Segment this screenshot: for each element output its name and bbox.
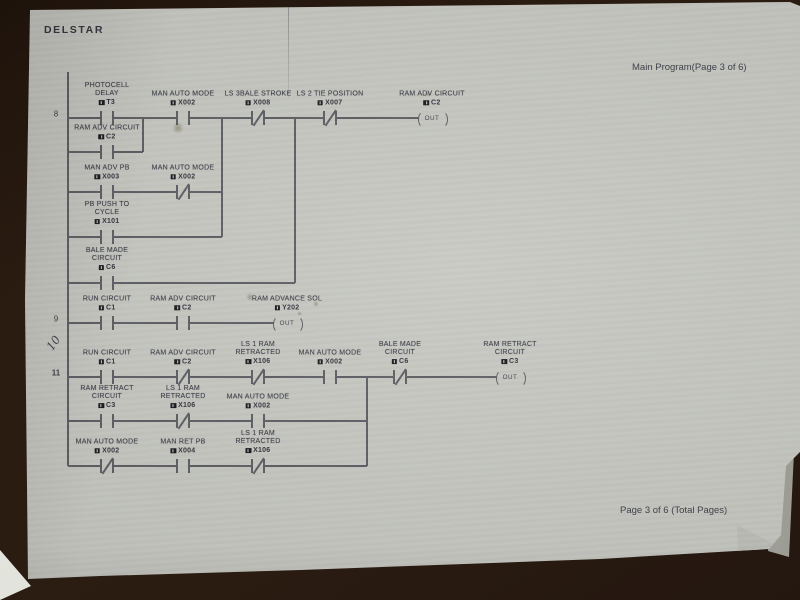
wire-vertical: [67, 72, 68, 466]
contact-bar: [188, 185, 190, 199]
device-name-text: MAN ADV PB: [84, 164, 129, 172]
device-name-text: DELAY: [85, 90, 130, 98]
device-marker-icon: [95, 219, 101, 225]
paper-stain: [297, 311, 302, 316]
device-marker-icon: [175, 305, 181, 311]
device-tag-text: X004: [178, 447, 195, 454]
contact-no-C6-label: BALE MADECIRCUITC6: [86, 247, 128, 272]
device-tag-text: C6: [399, 358, 408, 365]
paper-stain: [246, 293, 254, 301]
contact-bar: [188, 111, 190, 125]
contact-bar: [188, 414, 190, 428]
device-name-text: PB PUSH TO: [85, 201, 130, 209]
wire-horizontal: [68, 117, 432, 118]
device-tag-text: X007: [325, 99, 342, 106]
coil-C3-label: RAM RETRACTCIRCUITC3: [483, 341, 536, 366]
device-tag: Y202: [252, 304, 322, 313]
device-tag-text: T3: [106, 99, 115, 106]
contact-gap: [102, 315, 112, 331]
contact-bar: [112, 276, 114, 290]
contact-bar: [100, 316, 102, 330]
device-tag: X002: [299, 358, 362, 367]
device-name-text: LS 1 RAM: [160, 385, 205, 393]
contact-no-X101-label: PB PUSH TOCYCLEX101: [85, 201, 130, 226]
wire-vertical: [221, 118, 222, 237]
device-tag: X101: [85, 218, 130, 227]
footer-page-label: Page 3 of 6 (Total Pages): [620, 505, 727, 516]
ladder-printout-paper: DELSTAR Main Program(Page 3 of 6) Page 3…: [0, 0, 800, 600]
contact-bar: [112, 316, 114, 330]
contact-bar: [263, 111, 265, 125]
contact-nc-C2-label: RAM ADV CIRCUITC2: [150, 349, 216, 366]
page-title: DELSTAR: [44, 24, 104, 36]
paper-stain: [313, 301, 319, 307]
contact-bar: [112, 145, 114, 159]
device-name-text: PHOTOCELL: [85, 82, 130, 90]
device-marker-icon: [171, 403, 177, 409]
contact-gap: [102, 144, 112, 160]
device-tag-text: X002: [325, 358, 342, 365]
contact-bar: [263, 370, 265, 384]
contact-gap: [325, 369, 335, 385]
contact-bar: [100, 276, 102, 290]
device-name-text: MAN AUTO MODE: [152, 164, 215, 172]
device-marker-icon: [246, 359, 252, 365]
rung-number-8: 8: [54, 110, 58, 119]
coil-out-text: OUT: [274, 320, 300, 327]
device-tag-text: C2: [106, 133, 115, 140]
device-marker-icon: [171, 174, 177, 180]
device-tag-text: C3: [106, 402, 115, 409]
contact-gap: [178, 315, 188, 331]
device-marker-icon: [171, 100, 177, 106]
coil-Y202-label: RAM ADVANCE SOLY202: [252, 295, 322, 312]
device-tag: C6: [379, 358, 421, 367]
contact-no-X002-label: MAN AUTO MODEX002: [152, 90, 215, 107]
rung-number-9: 9: [54, 315, 58, 324]
contact-nc-C6-label: BALE MADECIRCUITC6: [379, 341, 421, 366]
device-name-text: LS 1 RAM: [235, 430, 280, 438]
device-tag-text: C6: [106, 264, 115, 271]
device-name-text: MAN RET PB: [160, 438, 205, 446]
device-name-text: BALE MADE: [86, 247, 128, 255]
contact-bar: [112, 230, 114, 244]
contact-bar: [263, 414, 265, 428]
contact-no-X003-label: MAN ADV PBX003: [84, 164, 129, 181]
device-tag: X003: [84, 173, 129, 182]
contact-gap: [102, 413, 112, 429]
contact-bar: [112, 370, 114, 384]
device-tag-text: X101: [102, 218, 119, 225]
device-tag-text: X106: [253, 447, 270, 454]
contact-nc-X106-label: LS 1 RAMRETRACTEDX106: [160, 385, 205, 410]
rung-number-11: 11: [52, 369, 60, 378]
device-tag: X002: [152, 173, 215, 182]
wire-vertical: [294, 118, 295, 283]
contact-bar: [176, 459, 178, 473]
device-marker-icon: [99, 265, 105, 271]
contact-nc-X106-label: LS 1 RAMRETRACTEDX106: [235, 430, 280, 455]
device-name-text: CYCLE: [85, 209, 130, 217]
contact-nc-X106-label: LS 1 RAMRETRACTEDX106: [235, 341, 280, 366]
device-tag-text: X002: [102, 447, 119, 454]
header-program-title: Main Program(Page 3 of 6): [632, 62, 747, 73]
contact-no-C2-label: RAM ADV CIRCUITC2: [150, 295, 216, 312]
wire-horizontal: [68, 236, 222, 237]
contact-gap: [178, 458, 188, 474]
device-marker-icon: [424, 100, 430, 106]
device-name-text: RAM ADV CIRCUIT: [150, 349, 216, 357]
device-name-text: RUN CIRCUIT: [83, 295, 131, 303]
device-tag-text: C3: [509, 358, 518, 365]
device-name-text: RAM RETRACT: [483, 341, 536, 349]
contact-bar: [335, 370, 337, 384]
device-tag: C6: [86, 264, 128, 273]
device-tag: C2: [150, 358, 216, 367]
device-marker-icon: [171, 448, 177, 454]
contact-bar: [100, 185, 102, 199]
contact-gap: [253, 413, 263, 429]
contact-no-C3-label: RAM RETRACTCIRCUITC3: [80, 385, 133, 410]
device-tag: X106: [160, 402, 205, 411]
device-tag-text: X003: [102, 173, 119, 180]
device-marker-icon: [99, 359, 105, 365]
device-name-text: RAM RETRACT: [80, 385, 133, 393]
coil-C2-label: RAM ADV CIRCUITC2: [399, 90, 465, 107]
contact-gap: [102, 275, 112, 291]
device-tag: C2: [150, 304, 216, 313]
device-marker-icon: [95, 174, 101, 180]
device-tag-text: Y202: [282, 304, 299, 311]
device-tag: X004: [160, 447, 205, 456]
device-marker-icon: [99, 134, 105, 140]
contact-gap: [102, 369, 112, 385]
device-name-text: MAN AUTO MODE: [152, 90, 215, 98]
device-tag-text: C1: [106, 358, 115, 365]
device-tag: C2: [74, 133, 140, 142]
device-name-text: MAN AUTO MODE: [227, 393, 290, 401]
device-tag: X002: [152, 99, 215, 108]
contact-bar: [112, 185, 114, 199]
device-tag: X106: [235, 447, 280, 456]
contact-bar: [405, 370, 407, 384]
paper-stain: [172, 122, 184, 134]
photo-scene: DELSTAR Main Program(Page 3 of 6) Page 3…: [0, 0, 800, 600]
device-name-text: RETRACTED: [235, 349, 280, 357]
device-marker-icon: [99, 100, 105, 106]
device-name-text: RAM ADV CIRCUIT: [74, 124, 140, 132]
contact-nc-X002-label: MAN AUTO MODEX002: [152, 164, 215, 181]
paper-stain: [425, 91, 431, 97]
device-marker-icon: [246, 448, 252, 454]
contact-no-C2-label: RAM ADV CIRCUITC2: [74, 124, 140, 141]
contact-bar: [100, 370, 102, 384]
device-tag: C3: [483, 358, 536, 367]
contact-bar: [112, 459, 114, 473]
device-tag: T3: [85, 99, 130, 108]
contact-bar: [100, 230, 102, 244]
device-name-text: LS 1 RAM: [235, 341, 280, 349]
device-tag: C1: [83, 358, 131, 367]
device-name-text: LS 3BALE STROKE: [225, 90, 292, 98]
device-marker-icon: [95, 448, 101, 454]
device-marker-icon: [246, 100, 252, 106]
contact-bar: [188, 370, 190, 384]
device-tag: X002: [76, 447, 139, 456]
device-tag-text: X106: [178, 402, 195, 409]
device-name-text: LS 2 TIE POSITION: [297, 90, 364, 98]
device-name-text: MAN AUTO MODE: [299, 349, 362, 357]
device-marker-icon: [275, 305, 281, 311]
contact-bar: [100, 414, 102, 428]
device-tag: C2: [399, 99, 465, 108]
device-tag-text: C2: [182, 358, 191, 365]
device-name-text: BALE MADE: [379, 341, 421, 349]
device-marker-icon: [318, 359, 324, 365]
contact-bar: [100, 111, 102, 125]
wire-vertical: [142, 118, 143, 152]
device-name-text: CIRCUIT: [379, 349, 421, 357]
contact-gap: [102, 184, 112, 200]
contact-bar: [188, 459, 190, 473]
device-tag-text: C1: [106, 304, 115, 311]
device-name-text: MAN AUTO MODE: [76, 438, 139, 446]
device-tag-text: X106: [253, 358, 270, 365]
device-marker-icon: [392, 359, 398, 365]
coil-out-text: OUT: [419, 115, 445, 122]
contact-bar: [100, 145, 102, 159]
device-tag: X002: [227, 402, 290, 411]
device-marker-icon: [99, 305, 105, 311]
device-tag-text: X002: [178, 173, 195, 180]
device-tag-text: C2: [431, 99, 440, 106]
contact-no-X002-label: MAN AUTO MODEX002: [227, 393, 290, 410]
wire-horizontal: [68, 191, 222, 192]
contact-no-X004-label: MAN RET PBX004: [160, 438, 205, 455]
contact-nc-X007-label: LS 2 TIE POSITIONX007: [297, 90, 364, 107]
device-tag-text: X008: [253, 99, 270, 106]
contact-bar: [251, 414, 253, 428]
contact-bar: [176, 316, 178, 330]
contact-bar: [323, 370, 325, 384]
contact-bar: [188, 316, 190, 330]
device-name-text: RUN CIRCUIT: [83, 349, 131, 357]
contact-bar: [112, 111, 114, 125]
contact-no-C1-label: RUN CIRCUITC1: [83, 295, 131, 312]
device-tag: X008: [225, 99, 292, 108]
contact-bar: [112, 414, 114, 428]
device-name-text: CIRCUIT: [80, 393, 133, 401]
contact-bar: [335, 111, 337, 125]
device-tag-text: X002: [253, 402, 270, 409]
contact-no-T3-label: PHOTOCELLDELAYT3: [85, 82, 130, 107]
device-marker-icon: [502, 359, 508, 365]
coil-out-text: OUT: [497, 374, 523, 381]
device-name-text: RETRACTED: [235, 438, 280, 446]
contact-bar: [263, 459, 265, 473]
device-tag-text: X002: [178, 99, 195, 106]
contact-no-X002-label: MAN AUTO MODEX002: [299, 349, 362, 366]
device-marker-icon: [99, 403, 105, 409]
device-name-text: RETRACTED: [160, 393, 205, 401]
device-marker-icon: [175, 359, 181, 365]
contact-nc-X008-label: LS 3BALE STROKEX008: [225, 90, 292, 107]
contact-nc-X002-label: MAN AUTO MODEX002: [76, 438, 139, 455]
device-marker-icon: [318, 100, 324, 106]
device-name-text: RAM ADVANCE SOL: [252, 295, 322, 303]
wire-horizontal: [68, 376, 510, 377]
contact-gap: [102, 229, 112, 245]
contact-no-C1-label: RUN CIRCUITC1: [83, 349, 131, 366]
device-tag-text: C2: [182, 304, 191, 311]
device-tag: X106: [235, 358, 280, 367]
device-name-text: RAM ADV CIRCUIT: [150, 295, 216, 303]
device-tag: C1: [83, 304, 131, 313]
device-name-text: RAM ADV CIRCUIT: [399, 90, 465, 98]
device-name-text: CIRCUIT: [86, 255, 128, 263]
device-tag: C3: [80, 402, 133, 411]
wire-vertical: [366, 377, 367, 466]
device-marker-icon: [246, 403, 252, 409]
device-tag: X007: [297, 99, 364, 108]
device-name-text: CIRCUIT: [483, 349, 536, 357]
